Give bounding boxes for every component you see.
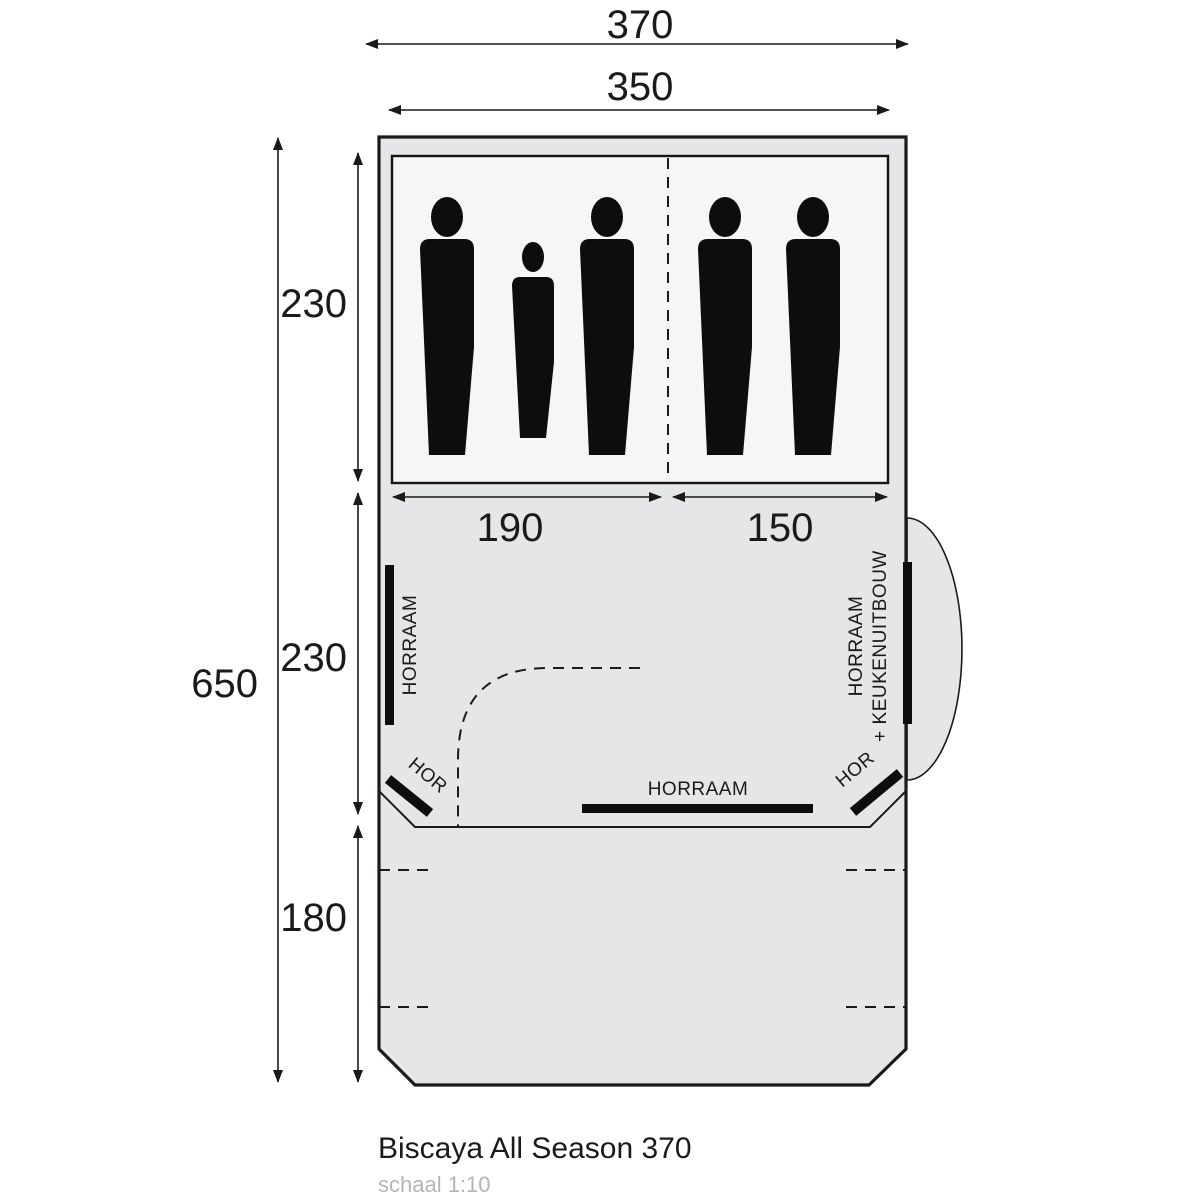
dim-outer-width-label: 370 [607, 3, 674, 47]
window-label-bottom: HORRAAM [648, 779, 749, 800]
window-bar-left [385, 565, 394, 725]
plan-canvas: HORRAAM HORRAAM + KEUKENUITBOUW HORRAAM … [0, 0, 1200, 1200]
tent-floorplan-figure: HORRAAM HORRAAM + KEUKENUITBOUW HORRAAM … [0, 0, 1200, 1200]
dim-sleeping-length-label: 230 [280, 282, 347, 326]
window-bar-bottom [582, 804, 813, 813]
window-label-left: HORRAAM [400, 595, 421, 696]
dim-inner-width-label: 350 [607, 65, 674, 109]
scale-note: schaal 1:10 [378, 1172, 491, 1197]
dim-living-length-label: 230 [280, 636, 347, 680]
dim-total-length-label: 650 [191, 662, 258, 706]
dim-canopy-length-label: 180 [280, 896, 347, 940]
dim-cabin-left-label: 190 [477, 506, 544, 550]
dim-cabin-right-label: 150 [747, 506, 814, 550]
kitchen-extension-bulge [907, 518, 962, 780]
window-bar-right [903, 562, 912, 724]
window-label-right-line1: HORRAAM [846, 596, 867, 697]
plan-title: Biscaya All Season 370 [378, 1132, 692, 1165]
window-label-right-line2: + KEUKENUITBOUW [870, 550, 891, 742]
